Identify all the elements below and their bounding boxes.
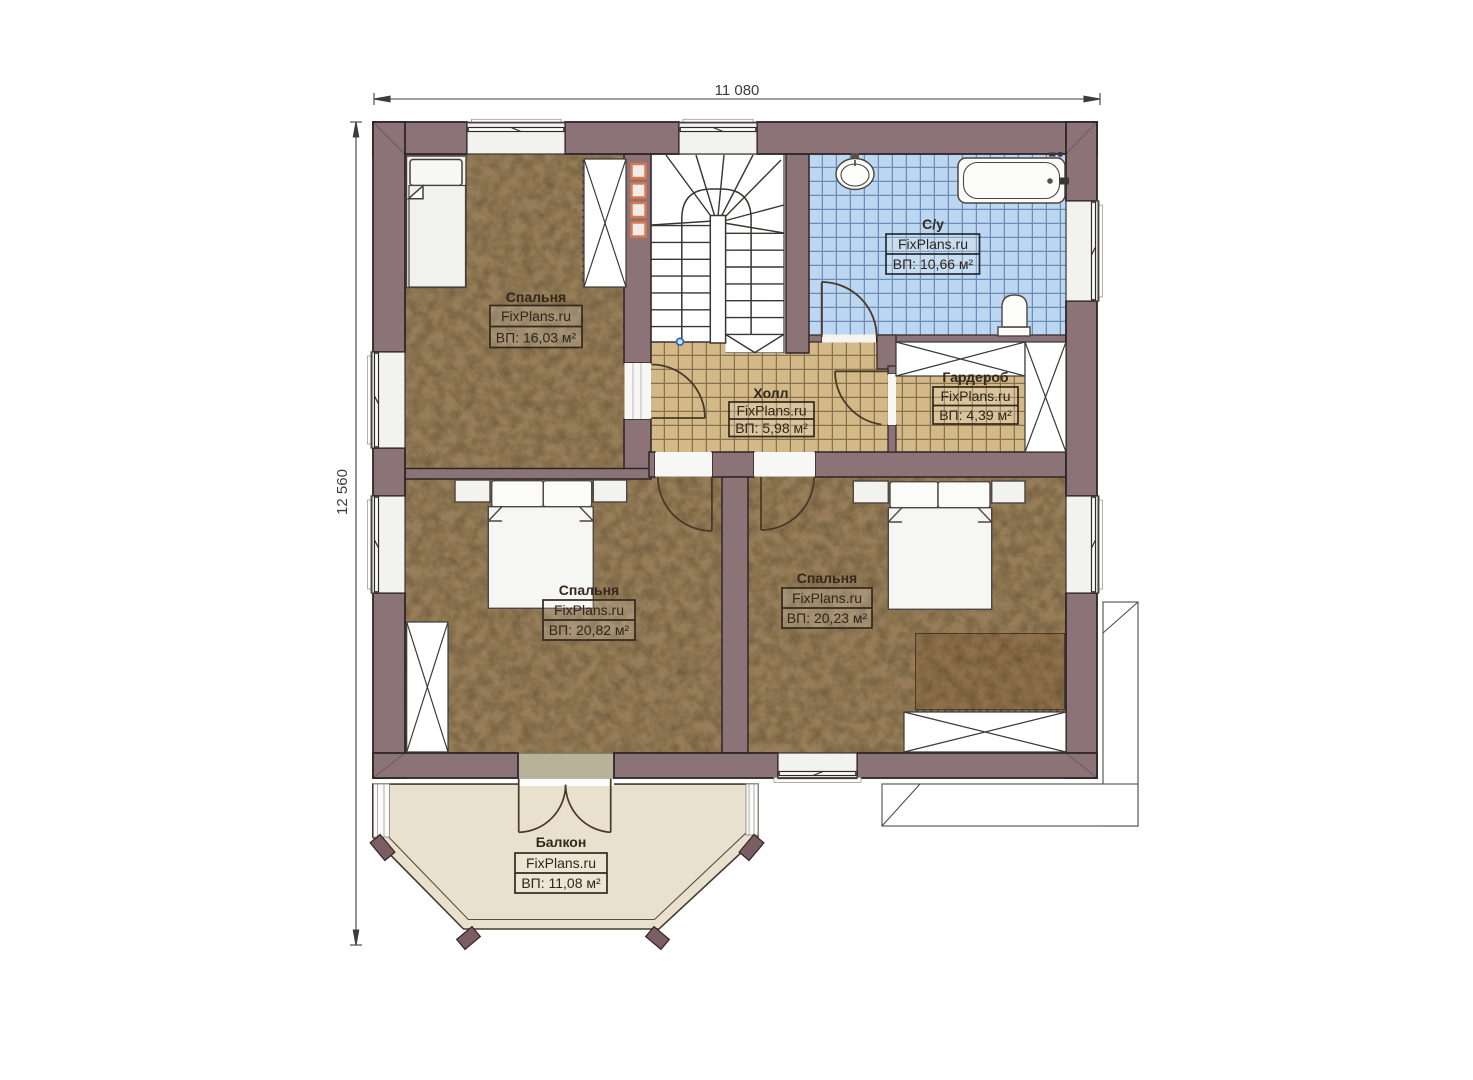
svg-text:Спальня: Спальня	[506, 289, 566, 305]
svg-text:ВП: 4,39 м²: ВП: 4,39 м²	[939, 407, 1012, 423]
svg-text:12 560: 12 560	[334, 469, 351, 515]
svg-text:С/у: С/у	[922, 216, 944, 232]
svg-text:ВП: 20,23 м²: ВП: 20,23 м²	[787, 610, 868, 626]
svg-text:ВП: 11,08 м²: ВП: 11,08 м²	[521, 875, 601, 891]
svg-text:Спальня: Спальня	[559, 582, 619, 598]
svg-text:FixPlans.ru: FixPlans.ru	[940, 388, 1010, 404]
svg-text:FixPlans.ru: FixPlans.ru	[792, 590, 862, 606]
svg-text:Балкон: Балкон	[536, 834, 587, 850]
svg-text:FixPlans.ru: FixPlans.ru	[526, 855, 596, 871]
svg-text:Гардероб: Гардероб	[942, 369, 1009, 385]
svg-text:Спальня: Спальня	[797, 570, 857, 586]
svg-text:ВП: 20,82 м²: ВП: 20,82 м²	[549, 622, 630, 638]
svg-text:ВП: 16,03 м²: ВП: 16,03 м²	[496, 330, 577, 346]
svg-text:FixPlans.ru: FixPlans.ru	[554, 602, 624, 618]
svg-text:FixPlans.ru: FixPlans.ru	[898, 236, 968, 252]
svg-text:ВП: 5,98 м²: ВП: 5,98 м²	[735, 420, 808, 436]
svg-text:FixPlans.ru: FixPlans.ru	[501, 308, 571, 324]
svg-text:11 080: 11 080	[715, 82, 760, 99]
svg-text:Холл: Холл	[753, 385, 788, 401]
svg-text:ВП: 10,66 м²: ВП: 10,66 м²	[893, 256, 974, 272]
svg-text:FixPlans.ru: FixPlans.ru	[736, 403, 806, 419]
